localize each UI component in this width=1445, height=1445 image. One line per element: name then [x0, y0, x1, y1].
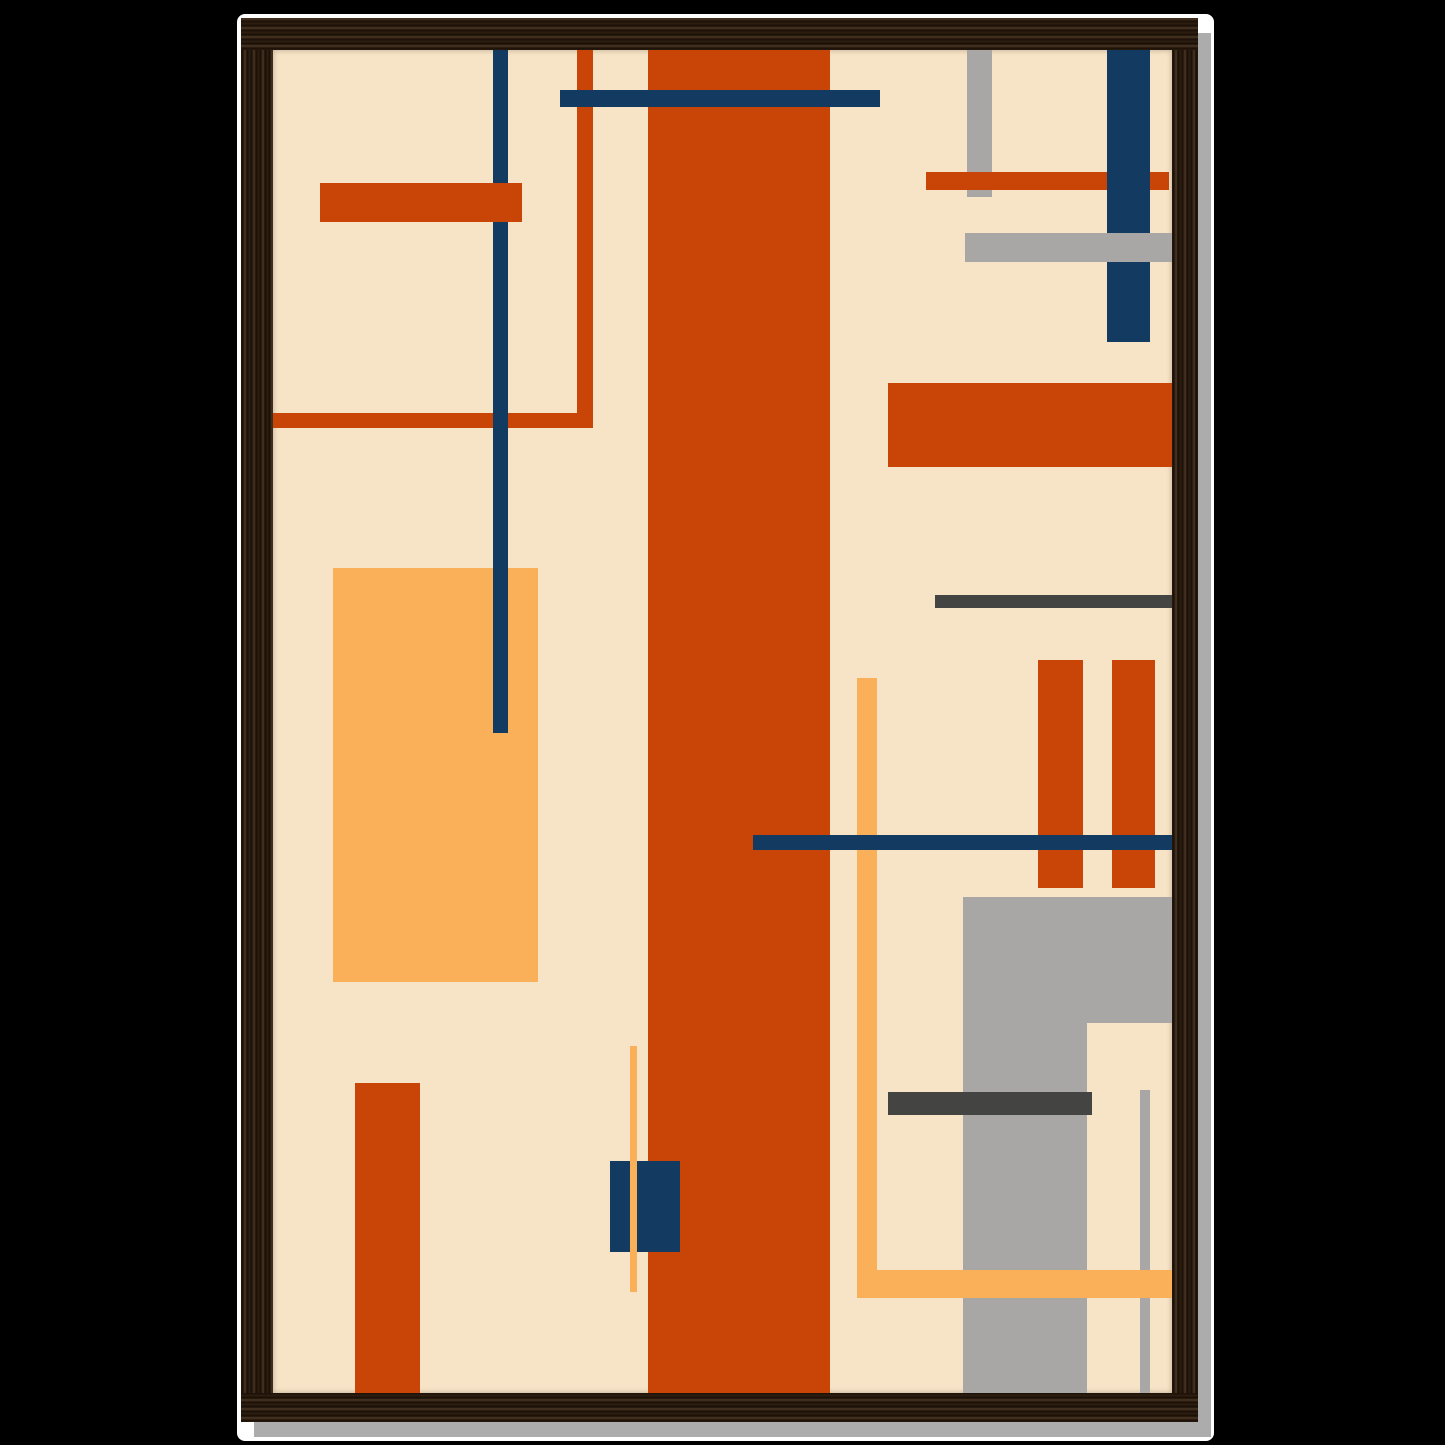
product-photo	[0, 0, 1445, 1445]
navy-bar-top	[560, 90, 880, 107]
orange-bar-topleft	[320, 183, 522, 222]
navy-wide-vertical-topright	[1107, 50, 1150, 342]
navy-vertical-left	[493, 50, 508, 733]
navy-square-bottom	[610, 1161, 680, 1252]
artwork-canvas	[273, 50, 1172, 1393]
darkgray-bar-bottom	[888, 1092, 1092, 1115]
frame-edge-top	[241, 18, 1198, 50]
orange-pillar-left	[1038, 660, 1083, 888]
orange-rect-right	[888, 383, 1172, 467]
amber-line-vertical-mid	[857, 678, 877, 1298]
navy-line-middle	[753, 835, 1172, 850]
amber-thin-line-bottom	[630, 1046, 637, 1292]
frame-edge-left	[241, 18, 273, 1422]
poster-backdrop	[237, 14, 1214, 1441]
gray-thin-vertical-bottom	[1140, 1090, 1150, 1393]
frame-edge-right	[1172, 18, 1198, 1422]
frame-edge-bottom	[241, 1393, 1198, 1422]
gray-bar-topright	[965, 233, 1172, 262]
orange-corner-horizontal	[273, 413, 588, 428]
orange-pillar-right	[1112, 660, 1155, 888]
orange-rect-bottomleft	[355, 1083, 420, 1393]
poster-frame	[241, 18, 1198, 1422]
gray-column-bottomright	[963, 897, 1087, 1393]
amber-bar-bottom	[857, 1270, 1172, 1298]
darkgray-line-right	[935, 595, 1172, 608]
